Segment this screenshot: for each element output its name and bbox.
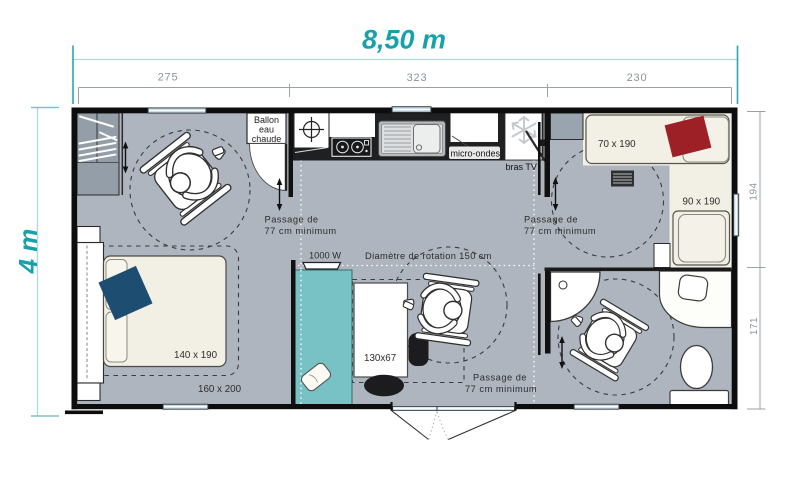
svg-text:Passage de: Passage de	[524, 215, 578, 225]
svg-text:chaude: chaude	[252, 134, 282, 144]
svg-text:140 x 190: 140 x 190	[174, 350, 218, 361]
svg-text:160 x 200: 160 x 200	[198, 384, 242, 395]
svg-text:77 cm minimum: 77 cm minimum	[265, 226, 337, 236]
svg-text:70 x 190: 70 x 190	[598, 139, 636, 150]
svg-text:micro-ondes: micro-ondes	[451, 149, 501, 159]
svg-text:eau: eau	[259, 125, 274, 135]
svg-text:171: 171	[749, 317, 760, 335]
svg-text:4 m: 4 m	[13, 229, 43, 275]
svg-text:1000 W: 1000 W	[309, 251, 341, 261]
svg-text:323: 323	[407, 72, 428, 84]
svg-text:230: 230	[627, 72, 648, 84]
svg-text:Ballon: Ballon	[254, 115, 279, 125]
svg-text:194: 194	[749, 182, 760, 200]
svg-text:Passage de: Passage de	[265, 215, 319, 225]
svg-text:130x67: 130x67	[364, 353, 396, 364]
svg-text:90 x 190: 90 x 190	[683, 197, 721, 208]
svg-text:8,50 m: 8,50 m	[362, 25, 446, 55]
svg-text:77 cm minimum: 77 cm minimum	[465, 384, 537, 394]
svg-text:77 cm minimum: 77 cm minimum	[524, 226, 596, 236]
svg-text:Passage de: Passage de	[473, 373, 527, 383]
svg-text:Diamètre de rotation 150 cm: Diamètre de rotation 150 cm	[365, 251, 492, 261]
svg-text:275: 275	[158, 72, 179, 84]
svg-text:bras TV: bras TV	[506, 162, 537, 172]
